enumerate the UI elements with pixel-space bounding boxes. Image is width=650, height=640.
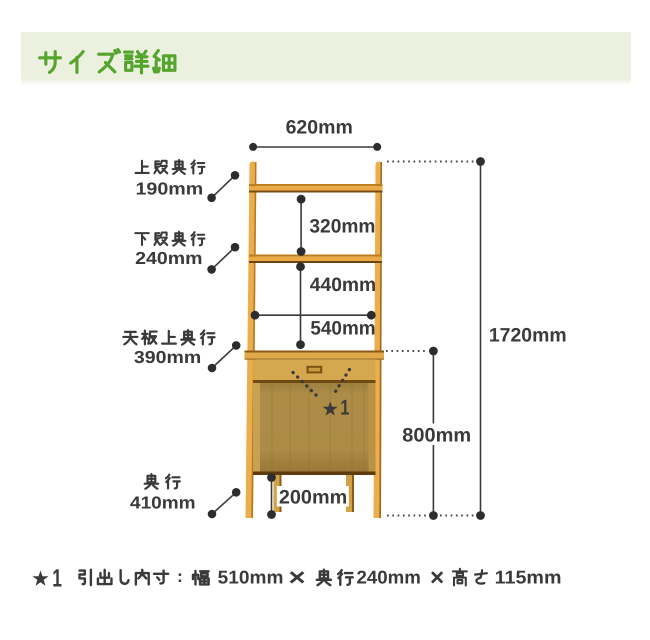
- svg-text:1720mm: 1720mm: [489, 324, 567, 346]
- svg-text:240mm: 240mm: [357, 566, 421, 587]
- svg-text:510mm: 510mm: [218, 566, 284, 587]
- svg-text:390mm: 390mm: [134, 347, 201, 367]
- svg-text:240mm: 240mm: [135, 248, 202, 268]
- svg-text:190mm: 190mm: [136, 178, 204, 198]
- svg-text:440mm: 440mm: [310, 274, 376, 296]
- svg-text:410mm: 410mm: [130, 493, 196, 513]
- svg-text:1: 1: [52, 565, 62, 593]
- svg-text:1: 1: [340, 397, 349, 420]
- svg-text:×: ×: [288, 565, 305, 592]
- svg-text:320mm: 320mm: [309, 216, 375, 238]
- svg-text:200mm: 200mm: [279, 487, 347, 509]
- svg-text:540mm: 540mm: [310, 318, 375, 340]
- svg-text:115mm: 115mm: [495, 566, 562, 587]
- svg-text:620mm: 620mm: [286, 117, 353, 139]
- svg-text:×: ×: [430, 565, 444, 592]
- svg-text:800mm: 800mm: [402, 425, 471, 447]
